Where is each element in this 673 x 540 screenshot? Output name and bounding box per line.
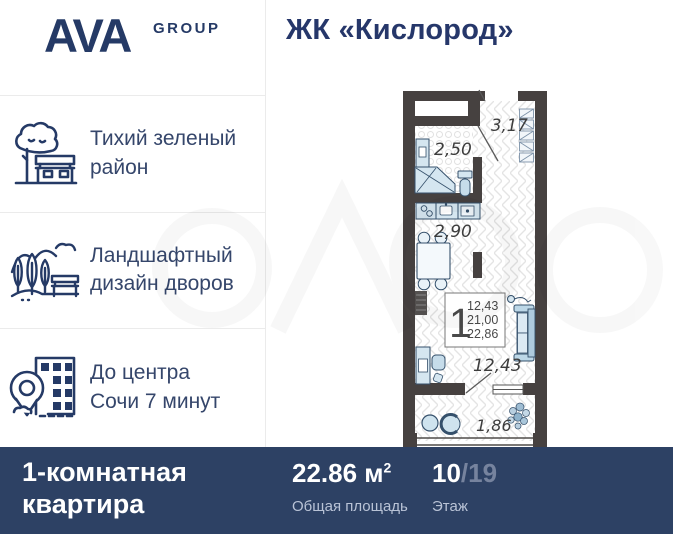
total-area-value: 22.86 м2: [292, 458, 391, 489]
feature-text: Тихий зеленый район: [90, 125, 236, 182]
washing-machine: [416, 139, 429, 167]
city-location-icon: [8, 350, 82, 426]
summary-bar: 1-комнатная квартира 22.86 м2 Общая площ…: [0, 447, 673, 534]
floor-plan: 1 12,43 21,00 22,86 3,17 2,50 2,90 12,43…: [390, 85, 560, 455]
floor-label: Этаж: [432, 498, 468, 515]
label-balcony: 1,86: [476, 416, 512, 435]
toilet: [458, 171, 472, 196]
feature-text: Ландшафтный дизайн дворов: [90, 242, 234, 299]
logo-text: AVA: [44, 8, 130, 63]
square-sup: 2: [384, 459, 392, 475]
entry-niche: [415, 101, 468, 116]
apartment-type: 1-комнатная квартира: [22, 456, 187, 520]
label-kitchen: 2,90: [434, 222, 472, 242]
balcony-window: [493, 385, 523, 394]
sofa: [514, 305, 535, 361]
area-living: 12,43: [467, 299, 498, 313]
logo-suffix: GROUP: [153, 20, 221, 37]
area-total: 22,86: [467, 327, 498, 341]
kitchen-counter: [416, 203, 480, 219]
room-info-box: 1 12,43 21,00 22,86: [445, 293, 505, 347]
floors-total: /19: [461, 458, 497, 488]
label-hallway: 3,17: [491, 116, 528, 135]
brand-logo: AVA GROUP: [0, 0, 265, 95]
feature-quiet-district: Тихий зеленый район: [0, 95, 265, 212]
page-title: ЖК «Кислород»: [286, 14, 514, 47]
floor-value: 10/19: [432, 458, 497, 489]
label-bathroom: 2,50: [434, 140, 472, 160]
label-room: 12,43: [473, 356, 522, 376]
feature-city-center: До центра Сочи 7 минут: [0, 328, 265, 447]
area-no-balcony: 21,00: [467, 313, 498, 327]
landscape-icon: [8, 232, 82, 308]
total-area-label: Общая площадь: [292, 498, 408, 515]
tree-bench-icon: [8, 116, 82, 192]
listing-card: AVA GROUP ЖК «Кислород» Тихий зеленый ра…: [0, 0, 673, 540]
feature-landscape-design: Ландшафтный дизайн дворов: [0, 212, 265, 328]
sidebar-vertical-divider: [265, 0, 266, 447]
feature-text: До центра Сочи 7 минут: [90, 359, 220, 416]
tv-shelf: [415, 291, 427, 315]
